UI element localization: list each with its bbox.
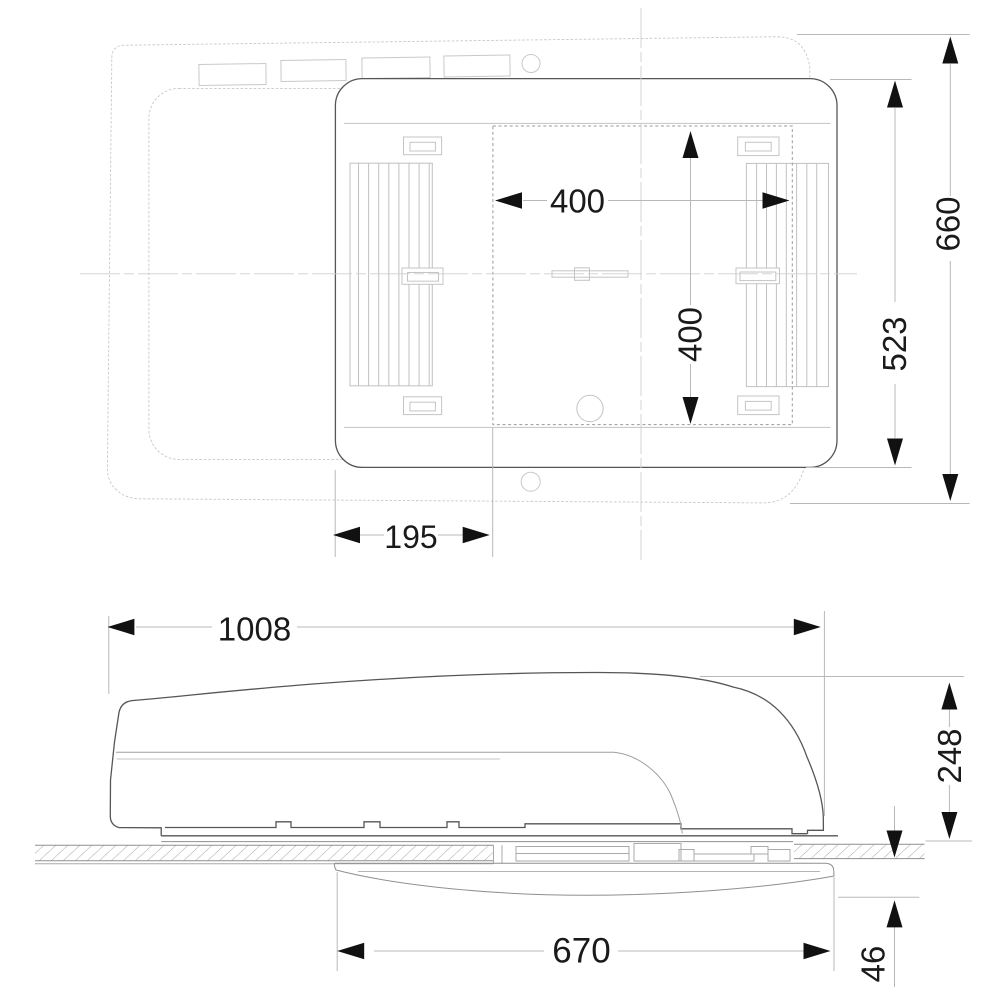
- svg-text:400: 400: [550, 183, 605, 220]
- svg-text:523: 523: [876, 316, 913, 371]
- svg-text:1008: 1008: [218, 611, 291, 648]
- svg-text:660: 660: [930, 196, 967, 251]
- svg-text:248: 248: [931, 728, 968, 783]
- svg-text:195: 195: [384, 519, 437, 555]
- svg-text:46: 46: [855, 946, 892, 983]
- svg-text:670: 670: [552, 932, 610, 971]
- svg-text:400: 400: [672, 307, 709, 362]
